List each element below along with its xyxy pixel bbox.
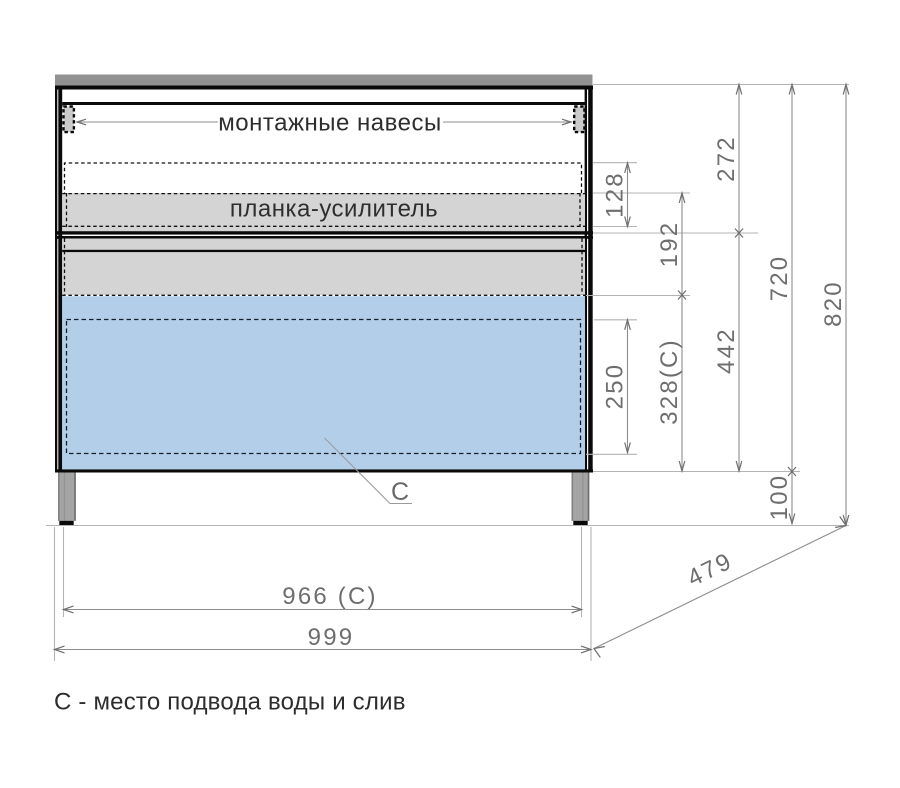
svg-text:планка-усилитель: планка-усилитель <box>230 196 438 223</box>
svg-text:C: C <box>391 478 409 506</box>
svg-text:328(C): 328(C) <box>656 338 683 425</box>
svg-text:966 (С): 966 (С) <box>282 583 377 610</box>
svg-text:720: 720 <box>766 255 793 302</box>
svg-text:100: 100 <box>766 474 793 521</box>
svg-text:192: 192 <box>656 221 683 268</box>
svg-text:820: 820 <box>820 280 847 327</box>
svg-text:С - место подвода воды и слив: С - место подвода воды и слив <box>54 689 406 716</box>
svg-text:250: 250 <box>602 363 629 410</box>
svg-text:монтажные навесы: монтажные навесы <box>218 110 441 137</box>
svg-text:272: 272 <box>713 135 740 182</box>
svg-text:128: 128 <box>602 171 629 218</box>
svg-text:999: 999 <box>308 624 355 651</box>
svg-text:442: 442 <box>713 327 740 374</box>
